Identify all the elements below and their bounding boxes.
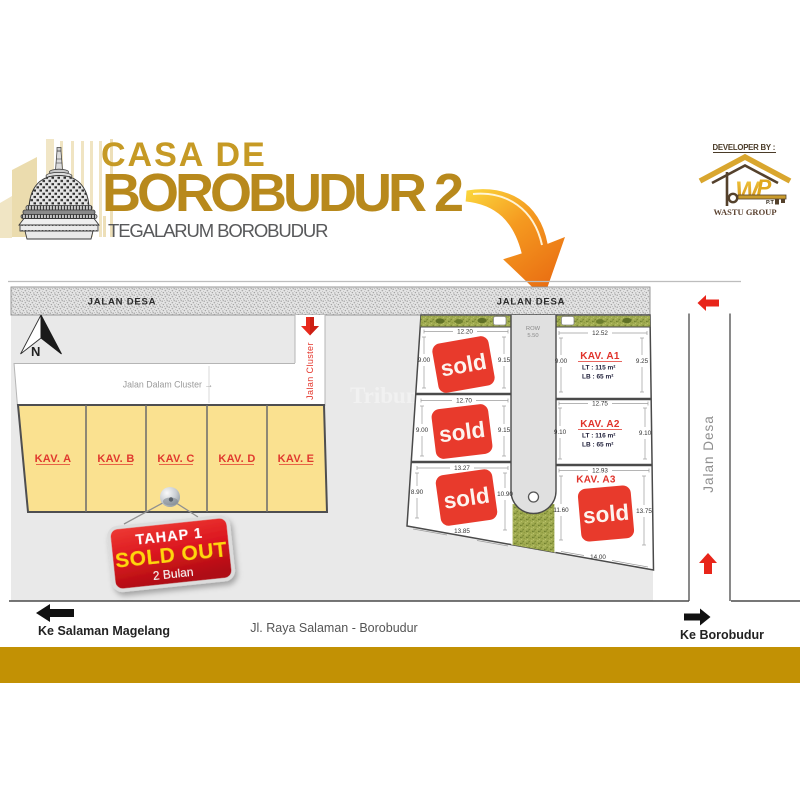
svg-text:TEGALARUM BOROBUDUR: TEGALARUM BOROBUDUR: [108, 220, 329, 241]
svg-text:Jalan Desa: Jalan Desa: [701, 415, 716, 493]
svg-text:KAV. E: KAV. E: [278, 453, 315, 465]
svg-text:9.00: 9.00: [555, 358, 568, 365]
svg-text:9.10: 9.10: [554, 429, 567, 436]
svg-text:JALAN DESA: JALAN DESA: [497, 297, 566, 308]
svg-text:JALAN DESA: JALAN DESA: [88, 297, 157, 308]
svg-text:Ke Borobudur: Ke Borobudur: [680, 628, 764, 642]
svg-text:11.60: 11.60: [553, 507, 569, 514]
svg-text:9.15: 9.15: [498, 427, 511, 434]
svg-text:DEVELOPER BY :: DEVELOPER BY :: [713, 143, 776, 152]
svg-text:8.90: 8.90: [411, 489, 424, 496]
svg-text:9.00: 9.00: [418, 357, 431, 364]
svg-text:9.25: 9.25: [636, 358, 649, 365]
svg-text:P.T: P.T: [766, 200, 774, 206]
svg-text:KAV. B: KAV. B: [97, 453, 134, 465]
svg-text:LT : 115 m²: LT : 115 m²: [582, 365, 616, 372]
svg-text:KAV. A: KAV. A: [35, 453, 72, 465]
svg-text:KAV. C: KAV. C: [157, 453, 194, 465]
svg-text:KAV. A2: KAV. A2: [580, 419, 620, 430]
svg-text:9.15: 9.15: [498, 357, 511, 364]
svg-text:ROW: ROW: [526, 326, 541, 332]
svg-text:12.70: 12.70: [456, 398, 472, 405]
svg-text:Ke Salaman Magelang: Ke Salaman Magelang: [38, 624, 170, 638]
svg-text:sold: sold: [582, 500, 630, 529]
svg-text:13.75: 13.75: [636, 508, 652, 515]
svg-text:14.00: 14.00: [590, 554, 606, 561]
svg-text:13.85: 13.85: [454, 528, 470, 535]
svg-text:KAV. A3: KAV. A3: [576, 475, 616, 486]
svg-text:13.27: 13.27: [454, 465, 470, 472]
svg-text:9.00: 9.00: [416, 427, 429, 434]
svg-text:12.20: 12.20: [457, 329, 473, 336]
svg-text:LB : 65 m²: LB : 65 m²: [582, 442, 614, 449]
svg-text:Jalan Cluster: Jalan Cluster: [305, 342, 315, 400]
svg-text:9.10: 9.10: [639, 430, 652, 437]
svg-text:WASTU GROUP: WASTU GROUP: [713, 207, 776, 217]
svg-text:12.75: 12.75: [592, 401, 608, 408]
svg-text:5.50: 5.50: [527, 333, 538, 339]
svg-text:Jl. Raya Salaman - Borobudur: Jl. Raya Salaman - Borobudur: [250, 621, 417, 635]
svg-text:BOROBUDUR 2: BOROBUDUR 2: [102, 163, 464, 223]
svg-text:12.52: 12.52: [592, 330, 608, 337]
svg-text:LT : 116 m²: LT : 116 m²: [582, 433, 616, 440]
svg-text:KAV. A1: KAV. A1: [580, 351, 620, 362]
svg-text:10.90: 10.90: [497, 491, 513, 498]
svg-text:LB : 65 m²: LB : 65 m²: [582, 374, 614, 381]
svg-text:Jalan Dalam Cluster →: Jalan Dalam Cluster →: [123, 380, 213, 390]
svg-text:KAV. D: KAV. D: [218, 453, 255, 465]
svg-text:N: N: [31, 344, 40, 359]
